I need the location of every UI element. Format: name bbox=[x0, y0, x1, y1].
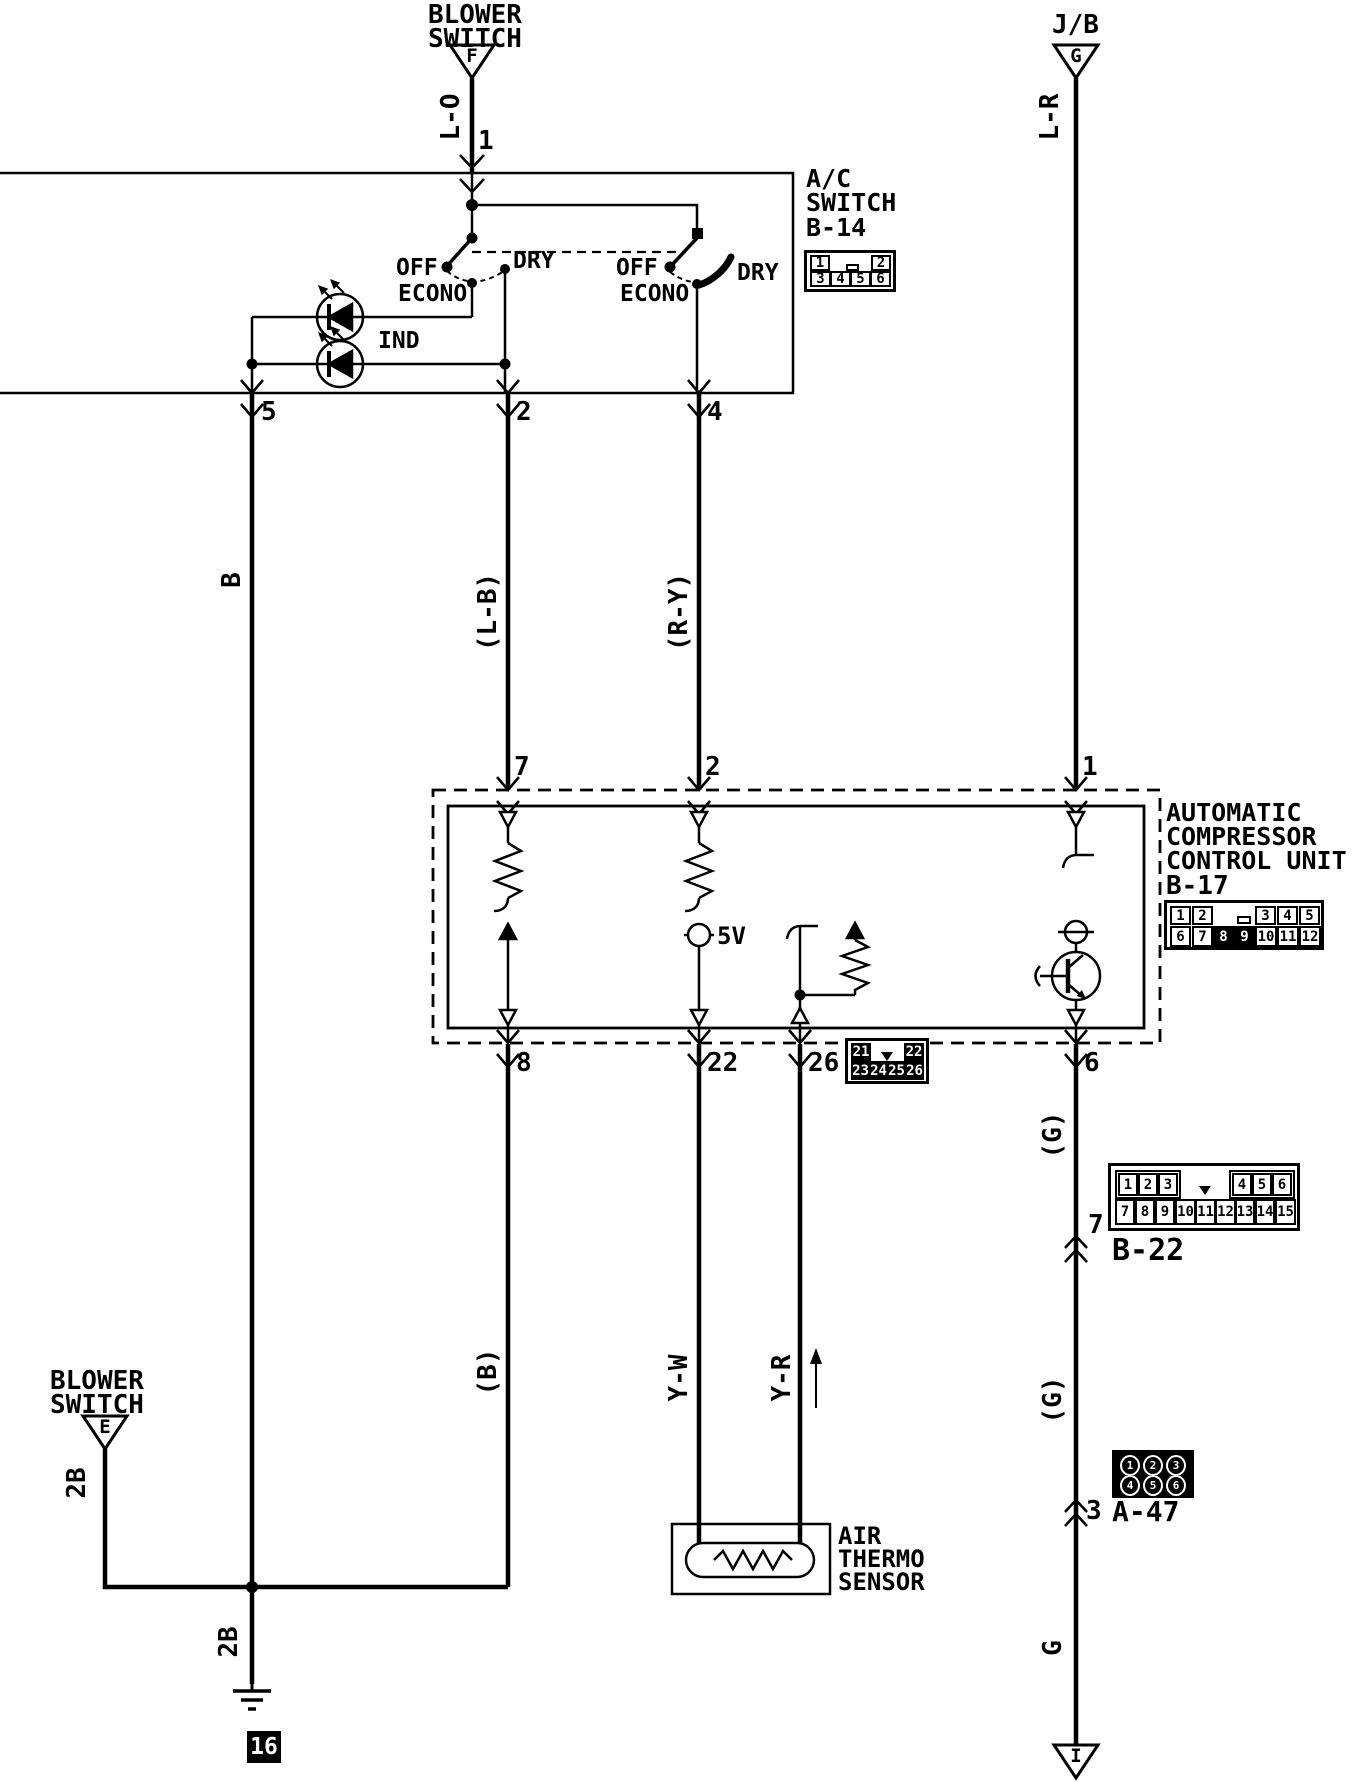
a47-code: A-47 bbox=[1112, 1498, 1179, 1526]
b22-cell: 5 bbox=[1252, 1173, 1272, 1196]
cu-title-3: CONTROL UNIT bbox=[1166, 848, 1347, 873]
ac-switch-contact-1 bbox=[447, 238, 505, 393]
cu-5v-label: 5V bbox=[717, 924, 746, 948]
switch1-econo-label: ECONO bbox=[398, 283, 467, 306]
b22-cell: 10 bbox=[1175, 1199, 1196, 1225]
b22-cell: 11 bbox=[1195, 1199, 1216, 1225]
a47-pin-number: 3 bbox=[1086, 1498, 1102, 1524]
pin-number-4: 4 bbox=[707, 399, 723, 425]
wire-label-b: B bbox=[219, 572, 245, 588]
ac-switch-title-2: SWITCH bbox=[806, 190, 896, 215]
b22-cell: 8 bbox=[1135, 1199, 1155, 1225]
wire-label-g-2: (G) bbox=[1040, 1377, 1066, 1424]
b17sub-cell-highlighted: 23 bbox=[851, 1061, 870, 1080]
b17-cell: 3 bbox=[1255, 906, 1276, 925]
b17sub-cell-highlighted: 26 bbox=[905, 1061, 924, 1080]
wire-label-r-y: (R-Y) bbox=[666, 573, 692, 651]
air-thermo-sensor bbox=[672, 1524, 830, 1594]
wire-label-y-w: Y-W bbox=[666, 1355, 692, 1402]
a47-cell: 3 bbox=[1164, 1456, 1188, 1475]
ac-switch-feed bbox=[472, 173, 697, 238]
a47-pin-circle: 5 bbox=[1143, 1475, 1163, 1496]
b14-cell: 1 bbox=[810, 255, 830, 271]
cu-pin-8: 8 bbox=[516, 1050, 532, 1076]
b17sub-cell-highlighted: 24 bbox=[869, 1061, 888, 1080]
connector-ref-f: F bbox=[450, 47, 494, 66]
b22-cell: 2 bbox=[1138, 1173, 1158, 1196]
ac-switch-code: B-14 bbox=[806, 215, 866, 240]
cu-code: B-17 bbox=[1166, 873, 1229, 899]
cu-output-transistor bbox=[1036, 812, 1101, 1043]
b17sub-notch bbox=[881, 1052, 893, 1061]
connector-a47-pinout: 1 2 3 4 5 6 bbox=[1112, 1450, 1194, 1498]
pin-number-5: 5 bbox=[261, 399, 277, 425]
b22-code: B-22 bbox=[1112, 1236, 1184, 1266]
b17-cell: 7 bbox=[1192, 926, 1213, 947]
cu-pin-7: 7 bbox=[514, 754, 530, 780]
wire-label-2b-1: 2B bbox=[64, 1467, 90, 1498]
b17sub-cell-highlighted: 25 bbox=[887, 1061, 906, 1080]
b17-cell-highlighted: 9 bbox=[1234, 926, 1255, 947]
switch2-econo-label: ECONO bbox=[620, 283, 689, 306]
b14-cell: 3 bbox=[810, 271, 831, 287]
b17-cell: 2 bbox=[1192, 906, 1213, 925]
b17-cell-highlighted: 8 bbox=[1213, 926, 1234, 947]
connector-b17-sub-pinout: 21 22 23 24 25 26 bbox=[845, 1038, 929, 1084]
wire-label-l-r: L-R bbox=[1037, 94, 1063, 141]
a47-pin-circle: 1 bbox=[1120, 1455, 1140, 1476]
cu-pin-26: 26 bbox=[808, 1050, 839, 1076]
b22-cell: 9 bbox=[1155, 1199, 1175, 1225]
cu-pin-2: 2 bbox=[705, 754, 721, 780]
b14-cell: 5 bbox=[850, 271, 871, 287]
b17-cell: 10 bbox=[1255, 926, 1277, 947]
pin-number-1: 1 bbox=[478, 128, 494, 154]
wire-label-g-3: G bbox=[1040, 1640, 1066, 1656]
wire-label-l-o: L-O bbox=[438, 94, 464, 141]
connector-ref-g: G bbox=[1054, 47, 1098, 66]
b14-cell: 2 bbox=[871, 255, 891, 271]
b17-cell: 1 bbox=[1170, 906, 1191, 925]
b22-cell: 14 bbox=[1255, 1199, 1275, 1225]
b22-cell: 7 bbox=[1115, 1199, 1135, 1225]
b17-cell: 12 bbox=[1299, 926, 1321, 947]
b17-cell: 6 bbox=[1170, 926, 1191, 947]
sensor-title-3: SENSOR bbox=[838, 1570, 925, 1594]
wire-label-l-b: (L-B) bbox=[475, 573, 501, 651]
wire-label-g-1: (G) bbox=[1040, 1112, 1066, 1159]
b17sub-cell-highlighted: 22 bbox=[904, 1043, 924, 1061]
a47-cell: 5 bbox=[1141, 1475, 1165, 1495]
a47-pin-circle: 4 bbox=[1120, 1475, 1140, 1496]
b17-cell: 4 bbox=[1277, 906, 1298, 925]
cu-pin-1: 1 bbox=[1082, 754, 1098, 780]
b22-cell: 15 bbox=[1275, 1199, 1296, 1225]
b22-notch bbox=[1199, 1186, 1211, 1195]
b22-cell: 4 bbox=[1232, 1173, 1252, 1196]
cu-sensor-input bbox=[787, 923, 868, 1043]
wire-label-b-lower: (B) bbox=[475, 1349, 501, 1396]
ac-switch-contact-2 bbox=[670, 238, 731, 393]
cu-input-resistor-1 bbox=[494, 812, 521, 1043]
b22-cell: 6 bbox=[1272, 1173, 1292, 1196]
control-unit-outline bbox=[433, 790, 1160, 1043]
a47-pin-circle: 6 bbox=[1166, 1475, 1186, 1496]
b22-cell: 13 bbox=[1235, 1199, 1255, 1225]
cu-pin-22: 22 bbox=[707, 1050, 738, 1076]
switch2-dry-label: DRY bbox=[737, 262, 779, 285]
connector-b22-pinout: 1 2 3 4 5 6 7 8 9 10 11 12 13 14 15 bbox=[1108, 1163, 1300, 1231]
switch2-off-label: OFF bbox=[616, 257, 658, 280]
wire-label-2b-2: 2B bbox=[216, 1626, 242, 1657]
led-ind-label: IND bbox=[378, 330, 420, 353]
cu-pin-6: 6 bbox=[1084, 1050, 1100, 1076]
a47-cell: 2 bbox=[1141, 1456, 1165, 1475]
b17sub-cell-highlighted: 21 bbox=[851, 1043, 871, 1061]
b14-cell: 4 bbox=[830, 271, 851, 287]
switch1-off-label: OFF bbox=[396, 257, 438, 280]
a47-pin-circle: 2 bbox=[1143, 1455, 1163, 1476]
b17-notch bbox=[1237, 916, 1251, 924]
blower-switch-e-label-2: SWITCH bbox=[50, 1392, 144, 1418]
wire-label-y-r: Y-R bbox=[769, 1355, 795, 1402]
signal-direction-arrow bbox=[810, 1348, 822, 1408]
ground-point-badge: 16 bbox=[247, 1731, 281, 1763]
wiring-diagram-page: BLOWER SWITCH F L-O 1 J/B G L-R A/C SWIT… bbox=[0, 0, 1360, 1782]
b14-cell: 6 bbox=[870, 271, 891, 287]
jb-label: J/B bbox=[1052, 12, 1099, 38]
a47-cell: 4 bbox=[1118, 1475, 1142, 1495]
b17-cell: 5 bbox=[1299, 906, 1320, 925]
connector-ref-i: I bbox=[1054, 1747, 1098, 1766]
b22-cell: 3 bbox=[1158, 1173, 1178, 1196]
wire-2b bbox=[105, 1449, 508, 1587]
b17-cell: 11 bbox=[1277, 926, 1299, 947]
pin-crossing-chevrons bbox=[241, 155, 1087, 1526]
a47-cell: 6 bbox=[1164, 1475, 1188, 1495]
b22-pin-number: 7 bbox=[1088, 1212, 1104, 1238]
b22-cell: 12 bbox=[1215, 1199, 1236, 1225]
switch1-dry-label: DRY bbox=[513, 250, 555, 273]
connector-b14-pinout: 1 2 3 4 5 6 bbox=[804, 250, 896, 292]
a47-pin-circle: 3 bbox=[1166, 1455, 1186, 1476]
b22-cell: 1 bbox=[1118, 1173, 1138, 1196]
connector-b17-pinout: 1 2 3 4 5 6 7 8 9 10 11 12 bbox=[1164, 900, 1324, 950]
b14-notch bbox=[846, 264, 859, 271]
cu-input-resistor-2 bbox=[684, 812, 714, 1043]
connector-ref-e: E bbox=[83, 1418, 127, 1437]
pin-number-2: 2 bbox=[516, 399, 532, 425]
a47-cell: 1 bbox=[1118, 1456, 1142, 1475]
